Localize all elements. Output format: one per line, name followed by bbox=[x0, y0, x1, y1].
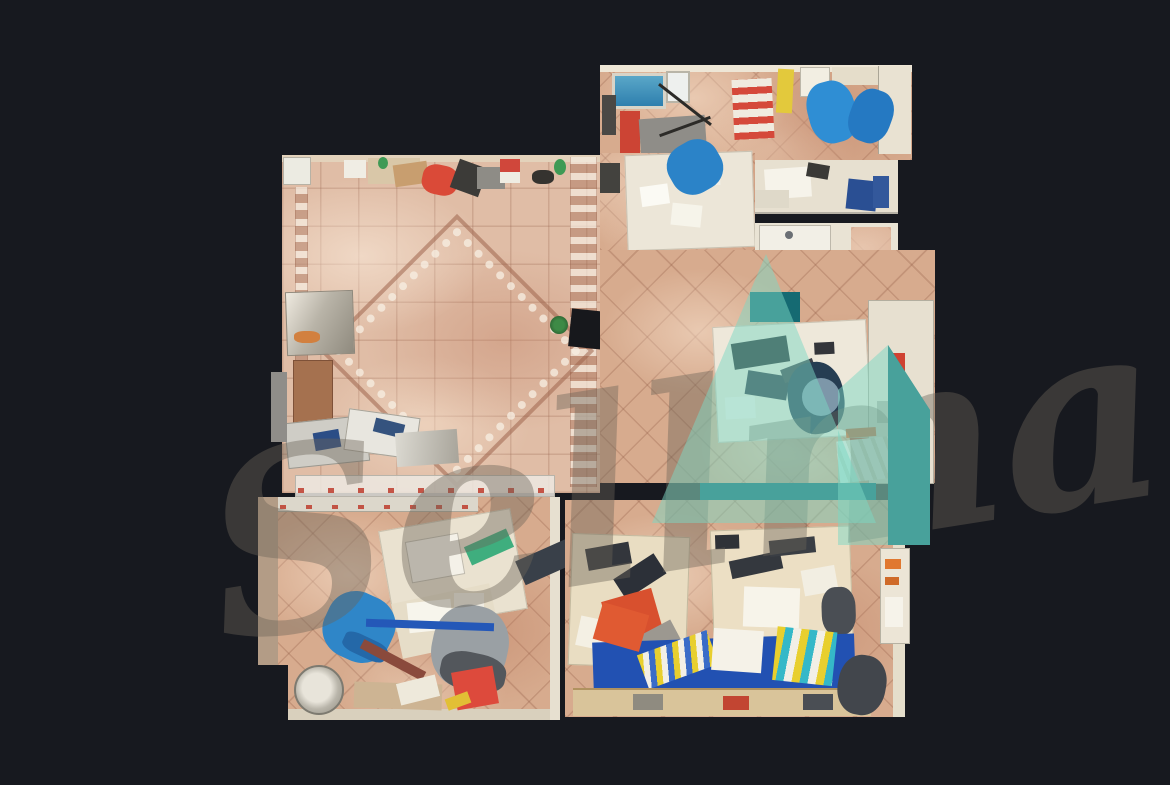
counter-red-labels bbox=[298, 488, 550, 493]
papers bbox=[743, 586, 800, 628]
monitor bbox=[731, 335, 790, 369]
binder-navy bbox=[873, 176, 889, 208]
left-wall bbox=[258, 497, 278, 665]
papers bbox=[640, 183, 671, 207]
counter-strip bbox=[278, 497, 478, 512]
tray bbox=[755, 190, 789, 208]
folder-stack-red bbox=[731, 78, 774, 140]
orange-item bbox=[885, 559, 901, 569]
cabinet-right-edge bbox=[880, 548, 910, 644]
keyboard bbox=[769, 536, 816, 557]
laptop bbox=[585, 542, 632, 571]
dark-box bbox=[803, 694, 833, 710]
chair-dark bbox=[821, 586, 857, 635]
papers bbox=[725, 396, 756, 420]
counter-red-labels bbox=[280, 505, 474, 509]
right-wall bbox=[550, 497, 560, 720]
room-top-desk bbox=[600, 153, 755, 250]
plant-green bbox=[554, 159, 566, 175]
room-main-hall bbox=[282, 155, 600, 493]
dark-shoe bbox=[532, 170, 554, 184]
bottom-shelf bbox=[573, 688, 871, 716]
plant-green bbox=[378, 157, 388, 169]
folder-stack bbox=[772, 626, 837, 686]
reception-desk-cluster bbox=[286, 413, 464, 479]
gray-box bbox=[877, 401, 917, 423]
chrome-cabinet bbox=[285, 290, 355, 356]
room-counter-strip bbox=[755, 160, 898, 214]
orange-item bbox=[885, 577, 899, 585]
red-white-box bbox=[500, 159, 520, 183]
chair-seat bbox=[802, 378, 840, 416]
papers bbox=[885, 597, 903, 627]
red-object bbox=[891, 353, 905, 371]
floor-fan bbox=[294, 665, 344, 715]
room-office-mid bbox=[600, 250, 935, 483]
red-object-tall bbox=[620, 111, 640, 153]
hall-corner-box bbox=[283, 157, 311, 185]
desk-phone bbox=[715, 534, 739, 549]
papers bbox=[670, 203, 702, 228]
papers bbox=[711, 628, 764, 673]
screenshot-stage: Sellma bbox=[0, 0, 1170, 785]
exterior-wall-chunk bbox=[271, 372, 287, 442]
plant-pot bbox=[550, 316, 568, 334]
folder-yellow bbox=[776, 69, 794, 114]
orange-patch bbox=[294, 331, 320, 343]
folder-row-white bbox=[836, 435, 906, 484]
faucet bbox=[785, 231, 793, 239]
corner-notch bbox=[258, 665, 288, 720]
dark-bits bbox=[602, 95, 616, 135]
dark-bits bbox=[600, 163, 620, 193]
gray-box bbox=[633, 694, 663, 710]
long-counter bbox=[295, 475, 555, 497]
room-bottom-center bbox=[565, 500, 905, 717]
red-box bbox=[723, 696, 749, 710]
room-bottom-left bbox=[258, 497, 560, 720]
papers bbox=[344, 160, 366, 178]
metal-slab bbox=[395, 429, 459, 467]
picture-frame-blue bbox=[612, 73, 666, 109]
desk-phone bbox=[814, 342, 835, 355]
hall-top-wall bbox=[282, 155, 600, 162]
room-top bbox=[600, 65, 912, 160]
